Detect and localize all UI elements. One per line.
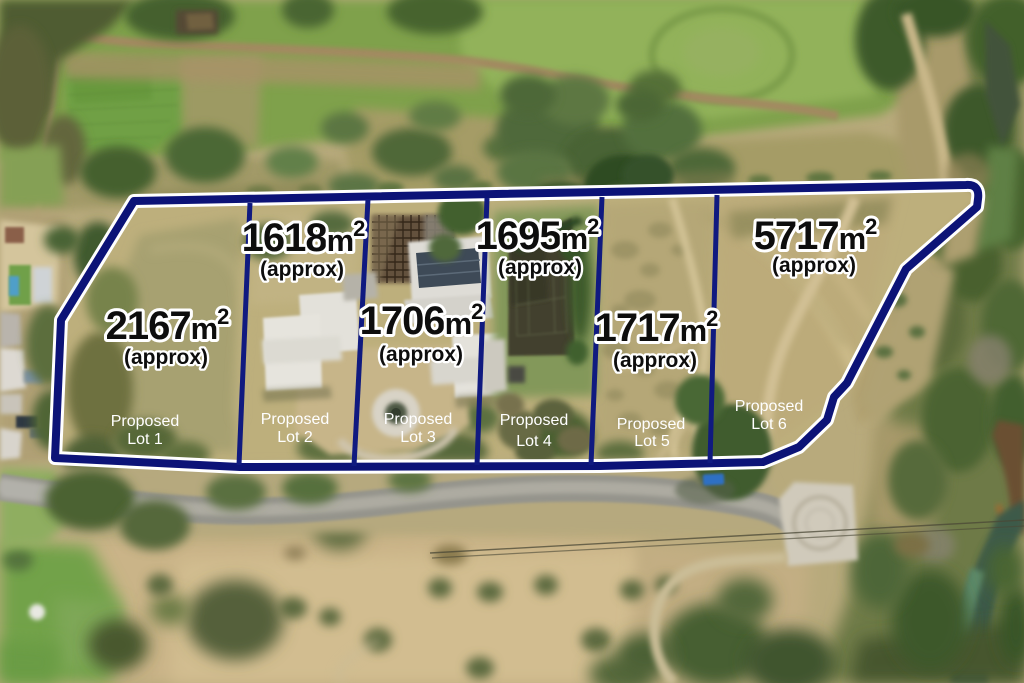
svg-text:Lot 4: Lot 4 bbox=[516, 433, 552, 450]
svg-text:Proposed: Proposed bbox=[617, 416, 686, 433]
svg-text:Proposed: Proposed bbox=[111, 413, 180, 430]
svg-text:(approx): (approx) bbox=[613, 349, 697, 372]
svg-text:Lot 6: Lot 6 bbox=[751, 416, 787, 433]
svg-text:(approx): (approx) bbox=[772, 254, 856, 277]
svg-text:Lot 5: Lot 5 bbox=[634, 433, 670, 450]
svg-text:1695m2: 1695m2 bbox=[476, 214, 600, 258]
svg-text:(approx): (approx) bbox=[124, 346, 208, 369]
svg-text:5717m2: 5717m2 bbox=[754, 214, 878, 258]
svg-text:Lot 3: Lot 3 bbox=[400, 429, 436, 446]
svg-text:Proposed: Proposed bbox=[735, 398, 804, 415]
svg-text:1717m2: 1717m2 bbox=[595, 306, 719, 350]
svg-text:2167m2: 2167m2 bbox=[106, 304, 230, 348]
svg-text:(approx): (approx) bbox=[498, 256, 582, 279]
svg-text:(approx): (approx) bbox=[260, 258, 344, 281]
svg-text:(approx): (approx) bbox=[379, 343, 463, 366]
svg-text:Proposed: Proposed bbox=[261, 411, 330, 428]
svg-text:Lot 2: Lot 2 bbox=[277, 429, 313, 446]
svg-text:Lot 1: Lot 1 bbox=[127, 431, 163, 448]
svg-text:Proposed: Proposed bbox=[500, 412, 569, 429]
svg-text:1618m2: 1618m2 bbox=[242, 216, 366, 260]
svg-text:Proposed: Proposed bbox=[384, 411, 453, 428]
svg-text:1706m2: 1706m2 bbox=[360, 299, 484, 343]
